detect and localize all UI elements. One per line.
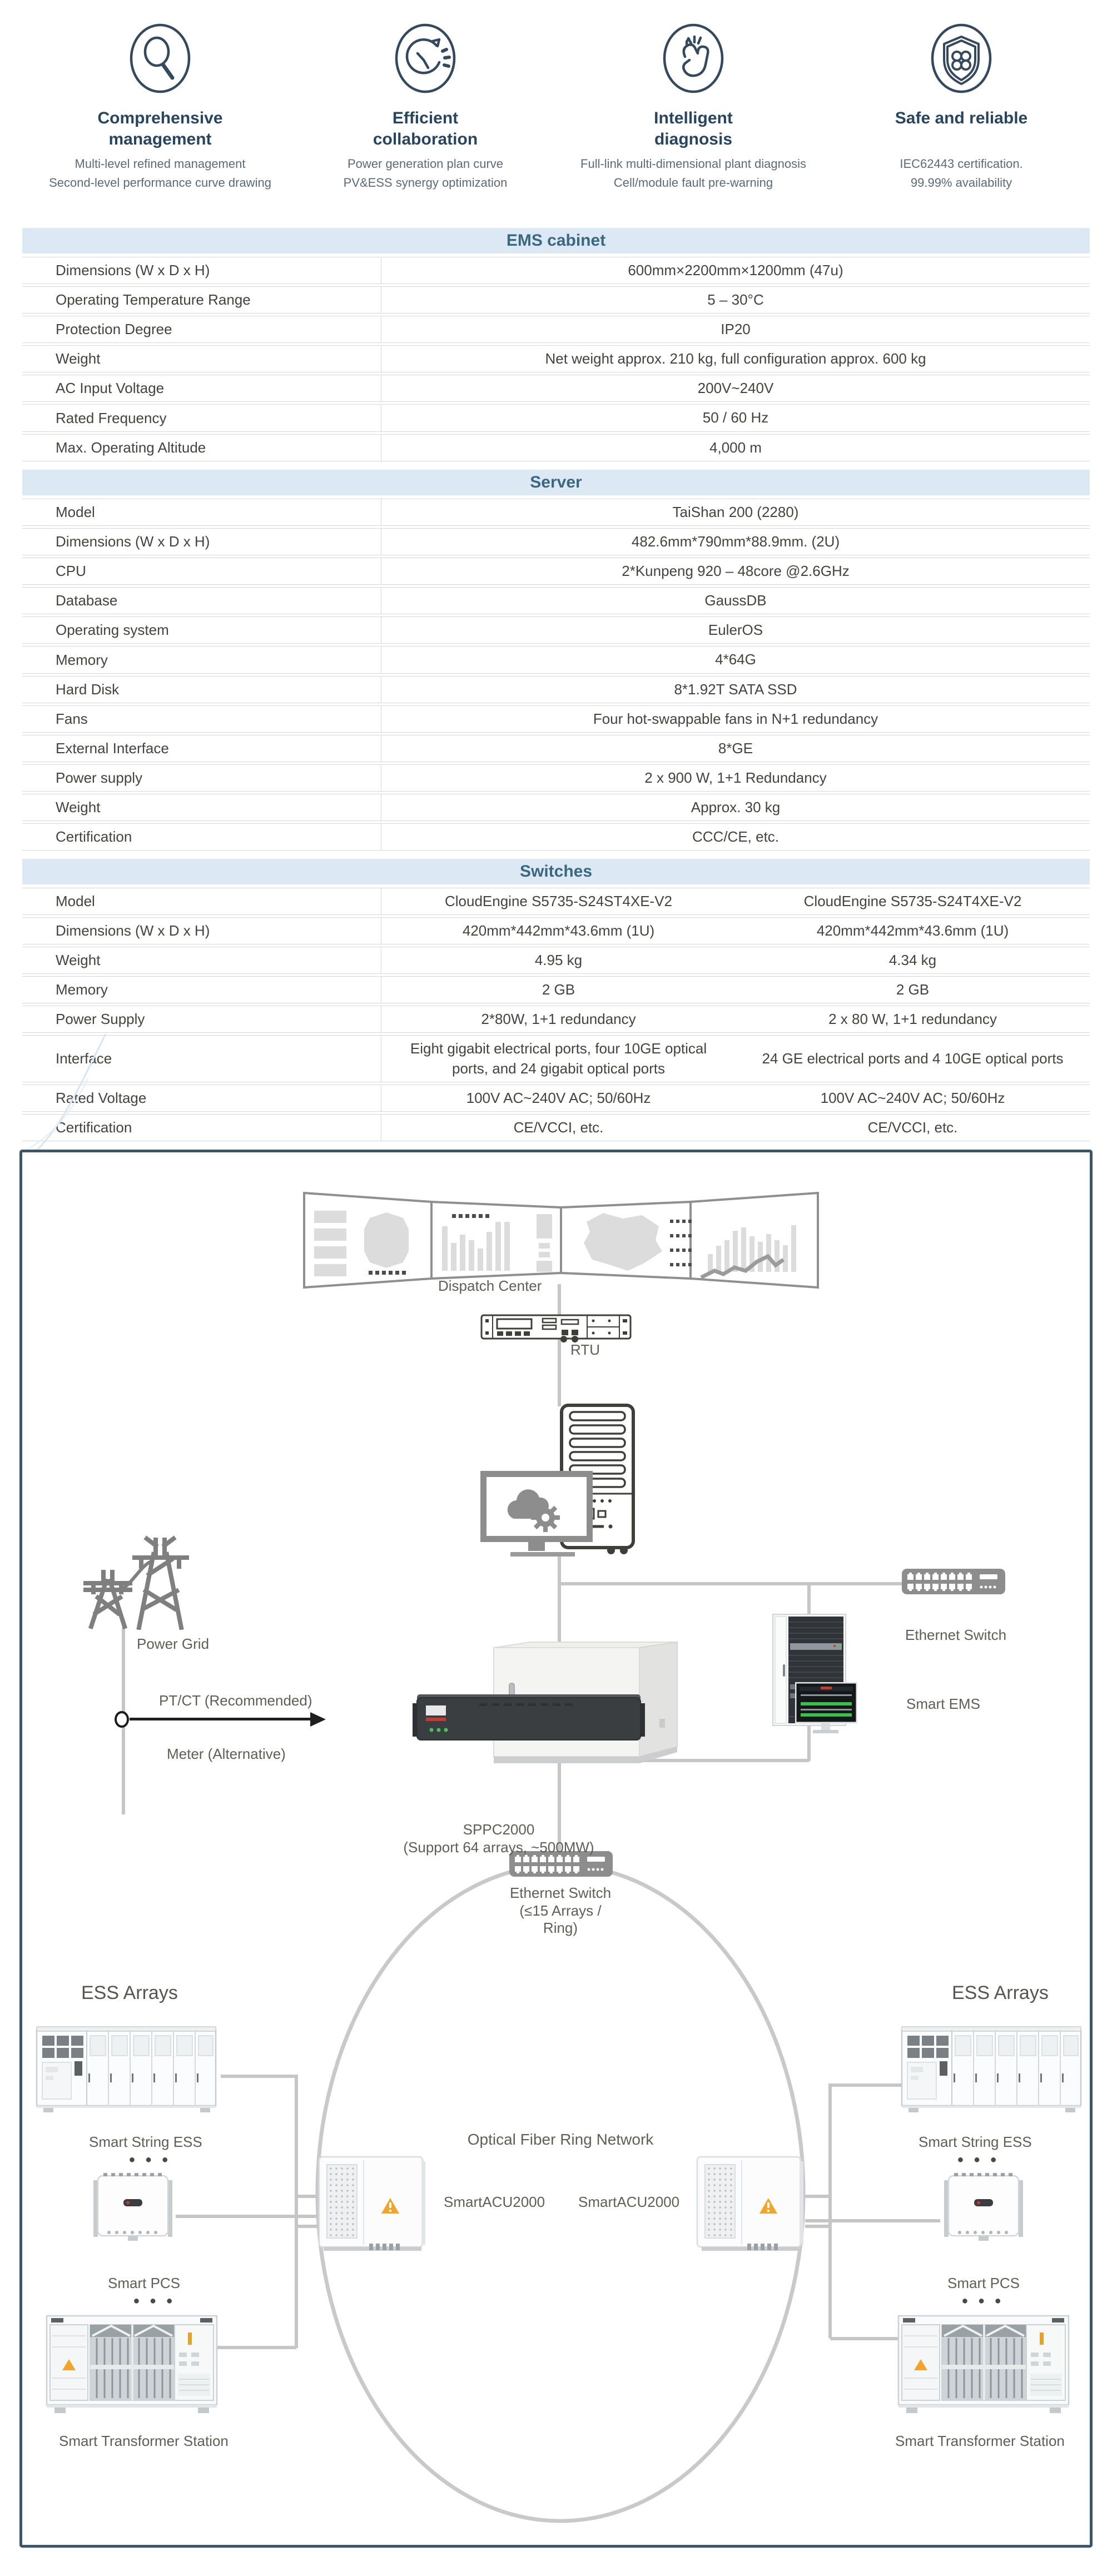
smart-string-ess-right [901, 2022, 1085, 2113]
spec-row-label: Protection Degree [22, 316, 381, 342]
spec-row-label: AC Input Voltage [22, 375, 381, 401]
ellipsis-left-2: ● ● ● [121, 2295, 188, 2308]
spec-row-value: IP20 [381, 316, 1090, 342]
table-title: Server [22, 470, 1090, 495]
spec-row: Protection DegreeIP20 [22, 316, 1090, 343]
table-title: EMS cabinet [22, 228, 1090, 253]
string-ess-left-label: Smart String ESS [89, 2134, 202, 2151]
spec-row: Dimensions (W x D x H)600mm×2200mm×1200m… [22, 257, 1090, 284]
spec-row-value: 600mm×2200mm×1200mm (47u) [381, 257, 1090, 284]
feature-sub-line: Full-link multi-dimensional plant diagno… [560, 155, 827, 173]
smartacu2000-left [318, 2156, 427, 2255]
smart-pcs-left-label: Smart PCS [108, 2275, 180, 2292]
feature-title: Efficient collaboration [353, 108, 498, 155]
smartacu-left-label: SmartACU2000 [444, 2194, 545, 2211]
spec-row-label: Memory [22, 977, 381, 1003]
feature-sub-line: IEC62443 certification. [828, 155, 1095, 173]
spec-row: Max. Operating Altitude4,000 m [22, 434, 1090, 461]
spec-row-value: CE/VCCI, etc. [381, 1115, 736, 1141]
feature-sub-line: Multi-level refined management [27, 155, 294, 173]
feature-safe-reliable: Safe and reliable IEC62443 certification… [828, 17, 1095, 192]
management-monitor [480, 1471, 593, 1559]
connector-line [558, 1339, 561, 1406]
spec-row: External Interface8*GE [22, 735, 1090, 762]
rtu-label: RTU [570, 1341, 600, 1359]
spec-row-value: CloudEngine S5735-S24ST4XE-V2 [381, 888, 736, 914]
page: Comprehensive management Multi-level ref… [0, 0, 1112, 2576]
dispatch-center-label: Dispatch Center [438, 1277, 542, 1295]
spec-row-label: Database [22, 588, 381, 614]
decorative-swoosh [22, 1017, 200, 1156]
spec-row-value: GaussDB [381, 588, 1090, 614]
spec-row: Memory4*64G [22, 646, 1090, 673]
power-grid-label: Power Grid [137, 1635, 209, 1653]
spec-row-label: CPU [22, 558, 381, 584]
spec-row-value: 50 / 60 Hz [381, 405, 1090, 431]
spec-row-value: Four hot-swappable fans in N+1 redundanc… [381, 706, 1090, 732]
spec-row: Operating Temperature Range5 – 30°C [22, 286, 1090, 314]
ptct-arrow-head [310, 1712, 326, 1727]
feature-sub-line: Second-level performance curve drawing [27, 173, 294, 192]
magnifier-icon [118, 17, 202, 100]
smart-ems-monitor [795, 1682, 857, 1734]
spec-row-label: Model [22, 888, 381, 914]
spec-row-value: Approx. 30 kg [381, 794, 1090, 820]
feature-sub-line: Cell/module fault pre-warning [560, 173, 827, 192]
spec-row: WeightApprox. 30 kg [22, 794, 1090, 821]
table-ems-cabinet: EMS cabinet Dimensions (W x D x H)600mm×… [22, 228, 1090, 464]
spec-row-value: 24 GE electrical ports and 4 10GE optica… [736, 1036, 1090, 1081]
smart-pcs-left [89, 2170, 177, 2245]
connector-line [176, 2215, 335, 2218]
connector-line [805, 2219, 940, 2222]
spec-row-value: 2*80W, 1+1 redundancy [381, 1006, 736, 1032]
spec-row-label: Fans [22, 706, 381, 732]
spec-row-value: 100V AC~240V AC; 50/60Hz [381, 1085, 736, 1111]
smart-string-ess-left [36, 2022, 220, 2113]
spec-row-value: 2 x 900 W, 1+1 Redundancy [381, 765, 1090, 791]
spec-row-value: 200V~240V [381, 375, 1090, 401]
spec-row-value: 2*Kunpeng 920 – 48core @2.6GHz [381, 558, 1090, 584]
sppc2000-label-line2: (Support 64 arrays, ~500MW) [332, 1839, 666, 1857]
shield-clover-icon [920, 17, 1003, 100]
ring-switch-label-line2: (≤15 Arrays / [477, 1902, 644, 1920]
connector-line [830, 2083, 906, 2087]
clock-cycle-icon [384, 17, 467, 100]
sppc2000-label: SPPC2000 (Support 64 arrays, ~500MW) [332, 1821, 666, 1856]
spec-row-value: Net weight approx. 210 kg, full configur… [381, 346, 1090, 372]
ring-switch-label-line1: Ethernet Switch [477, 1884, 644, 1902]
spec-row: Dimensions (W x D x H)420mm*442mm*43.6mm… [22, 917, 1090, 944]
table-server: Server ModelTaiShan 200 (2280)Dimensions… [22, 470, 1090, 853]
spec-row-label: Hard Disk [22, 677, 381, 703]
ess-arrays-right-heading: ESS Arrays [952, 1982, 1049, 2004]
spec-row: CertificationCCC/CE, etc. [22, 823, 1090, 851]
smart-pcs-right-label: Smart PCS [947, 2275, 1020, 2292]
spec-row: Dimensions (W x D x H)482.6mm*790mm*88.9… [22, 528, 1090, 555]
spec-row-value: 4.34 kg [736, 947, 1090, 973]
spec-row-label: Power supply [22, 765, 381, 791]
spec-row: Memory2 GB2 GB [22, 976, 1090, 1003]
spec-row-value: TaiShan 200 (2280) [381, 499, 1090, 525]
spec-row: Operating systemEulerOS [22, 616, 1090, 644]
connector-line [217, 2346, 296, 2349]
spec-row-label: Weight [22, 346, 381, 372]
connector-line [828, 2083, 832, 2338]
spec-row-value: Eight gigabit electrical ports, four 10G… [381, 1036, 736, 1081]
smartacu2000-right [696, 2156, 805, 2255]
sppc2000-label-line1: SPPC2000 [332, 1821, 666, 1839]
finger-snap-icon [652, 17, 735, 100]
spec-row: CPU2*Kunpeng 920 – 48core @2.6GHz [22, 558, 1090, 585]
power-grid-icon [81, 1525, 193, 1630]
connector-line [830, 2337, 900, 2340]
table-ems-rows: Dimensions (W x D x H)600mm×2200mm×1200m… [22, 257, 1090, 461]
connector-line [807, 1582, 811, 1617]
table-server-rows: ModelTaiShan 200 (2280)Dimensions (W x D… [22, 499, 1090, 851]
ring-title-label: Optical Fiber Ring Network [421, 2130, 699, 2149]
spec-row: Rated Frequency50 / 60 Hz [22, 404, 1090, 431]
smart-transformer-left [46, 2311, 218, 2417]
smart-ems-label: Smart EMS [906, 1695, 980, 1713]
spec-row-value: 100V AC~240V AC; 50/60Hz [736, 1085, 1090, 1111]
spec-row-value: 4,000 m [381, 435, 1090, 461]
spec-row: FansFour hot-swappable fans in N+1 redun… [22, 705, 1090, 733]
spec-row-label: Certification [22, 824, 381, 850]
connector-line [295, 2075, 298, 2348]
ring-switch-label-line3: Ring) [477, 1919, 644, 1937]
connector-line [558, 1555, 561, 1645]
spec-row: AC Input Voltage200V~240V [22, 375, 1090, 402]
spec-row-value: CloudEngine S5735-S24T4XE-V2 [736, 888, 1090, 914]
spec-row-label: Dimensions (W x D x H) [22, 257, 381, 284]
feature-sub-line: Power generation plan curve [292, 155, 559, 173]
ellipsis-right-2: ● ● ● [950, 2295, 1016, 2308]
dispatch-video-wall [303, 1187, 819, 1293]
spec-row: Hard Disk8*1.92T SATA SSD [22, 676, 1090, 703]
spec-row-label: External Interface [22, 735, 381, 762]
spec-row: ModelCloudEngine S5735-S24ST4XE-V2CloudE… [22, 888, 1090, 915]
sppc2000-controller [413, 1690, 645, 1745]
feature-title: Safe and reliable [889, 108, 1034, 155]
spec-row-value: CCC/CE, etc. [381, 824, 1090, 850]
spec-row-label: Max. Operating Altitude [22, 435, 381, 461]
ess-arrays-left-heading: ESS Arrays [81, 1982, 178, 2004]
spec-row-value: EulerOS [381, 617, 1090, 643]
spec-row: DatabaseGaussDB [22, 587, 1090, 614]
spec-row-value: 420mm*442mm*43.6mm (1U) [736, 918, 1090, 944]
grid-tap-node [115, 1711, 129, 1728]
ring-switch-label: Ethernet Switch (≤15 Arrays / Ring) [477, 1884, 644, 1937]
spec-row: Power supply2 x 900 W, 1+1 Redundancy [22, 764, 1090, 792]
spec-row-label: Model [22, 499, 381, 525]
spec-row: Weight4.95 kg4.34 kg [22, 947, 1090, 974]
spec-row-value: 4*64G [381, 647, 1090, 673]
spec-row: ModelTaiShan 200 (2280) [22, 499, 1090, 526]
table-title: Switches [22, 859, 1090, 884]
spec-row-label: Dimensions (W x D x H) [22, 529, 381, 555]
ptct-arrow-line [130, 1718, 312, 1720]
spec-row-label: Weight [22, 947, 381, 973]
feature-title: Comprehensive management [88, 108, 232, 155]
meter-label: Meter (Alternative) [167, 1745, 286, 1763]
spec-row-value: 4.95 kg [381, 947, 736, 973]
feature-title: Intelligent diagnosis [621, 108, 766, 155]
spec-row-label: Operating system [22, 617, 381, 643]
spec-row-value: 2 GB [381, 977, 736, 1003]
ellipsis-left-1: ● ● ● [117, 2154, 183, 2166]
spec-row-value: 5 – 30°C [381, 287, 1090, 313]
smart-pcs-right [940, 2170, 1027, 2245]
spec-row-value: 482.6mm*790mm*88.9mm. (2U) [381, 529, 1090, 555]
smartacu-right-label: SmartACU2000 [578, 2194, 679, 2211]
spec-row-value: 420mm*442mm*43.6mm (1U) [381, 918, 736, 944]
connector-line [805, 2195, 830, 2198]
ethernet-switch-icon [902, 1569, 1005, 1597]
spec-row-label: Dimensions (W x D x H) [22, 918, 381, 944]
spec-row-value: 2 GB [736, 977, 1090, 1003]
feature-sub-line: 99.99% availability [828, 173, 1095, 192]
spec-row-label: Rated Frequency [22, 405, 381, 431]
spec-row: WeightNet weight approx. 210 kg, full co… [22, 345, 1090, 372]
feature-intelligent-diagnosis: Intelligent diagnosis Full-link multi-di… [560, 17, 827, 192]
transformer-right-label: Smart Transformer Station [895, 2433, 1065, 2450]
transformer-left-label: Smart Transformer Station [59, 2433, 229, 2450]
rtu-device [480, 1314, 632, 1344]
spec-row-label: Memory [22, 647, 381, 673]
smart-transformer-right [897, 2311, 1070, 2417]
spec-row-value: 8*GE [381, 735, 1090, 762]
connector-line [805, 2225, 830, 2228]
spec-row-value: 2 x 80 W, 1+1 redundancy [736, 1006, 1090, 1032]
spec-row-label: Operating Temperature Range [22, 287, 381, 313]
spec-row-value: CE/VCCI, etc. [736, 1115, 1090, 1141]
connector-line [221, 2075, 296, 2078]
feature-sub-line: PV&ESS synergy optimization [292, 173, 559, 192]
string-ess-right-label: Smart String ESS [919, 2134, 1032, 2151]
ptct-label: PT/CT (Recommended) [159, 1692, 312, 1709]
feature-efficient-collaboration: Efficient collaboration Power generation… [292, 17, 559, 192]
spec-row-label: Weight [22, 794, 381, 820]
ellipsis-right-1: ● ● ● [945, 2154, 1012, 2166]
ethernet-switch-label: Ethernet Switch [905, 1627, 1006, 1644]
feature-comprehensive-management: Comprehensive management Multi-level ref… [27, 17, 294, 192]
spec-row-value: 8*1.92T SATA SSD [381, 677, 1090, 703]
connector-line [559, 1582, 902, 1585]
